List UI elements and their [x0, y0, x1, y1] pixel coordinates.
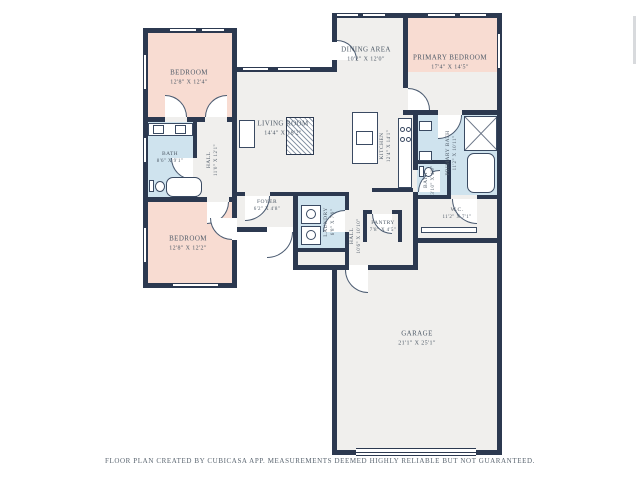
room-label-hall-1: HALL 11'0" X 12'1"	[205, 144, 221, 176]
wall	[477, 195, 502, 199]
room-dims: 11'0" X 12'1"	[213, 144, 221, 176]
window	[143, 138, 148, 162]
closet-shelf	[421, 227, 477, 233]
stove-burner-icon	[406, 127, 411, 132]
window	[460, 13, 486, 18]
room-label-pantry: PANTRY 7'8" X 4'5"	[370, 219, 396, 235]
wall	[476, 450, 502, 455]
wall	[337, 265, 345, 270]
window	[278, 67, 310, 72]
stove-burner-icon	[406, 137, 411, 142]
window	[337, 13, 358, 18]
room-label-primary-bedroom: PRIMARY BEDROOM 17'4" X 14'5"	[413, 52, 487, 72]
room-label-foyer: FOYER 6'2" X 4'8"	[254, 198, 280, 214]
wall	[229, 197, 237, 202]
front-door-arc	[267, 232, 293, 258]
wall	[143, 197, 207, 202]
room-label-living-room: LIVING ROOM 14'4" X 18'2"	[257, 118, 308, 138]
wall	[227, 117, 237, 122]
room-label-laundry: LAUNDRY 6'8" X 7'9"	[322, 207, 338, 236]
room-dims: 10'6" X 10'10"	[356, 218, 364, 253]
room-name: W.C.	[451, 206, 464, 214]
stove-burner-icon	[400, 127, 405, 132]
wall	[345, 192, 349, 210]
room-label-primary-bath: PRIMARY BATH 11'2" X 10'11"	[444, 130, 460, 175]
room-dims: 11'2" X 7'1"	[442, 214, 471, 222]
wall	[372, 188, 413, 192]
room-name: BEDROOM	[170, 67, 208, 78]
footer-disclaimer: FLOOR PLAN CREATED BY CUBICASA APP. MEAS…	[0, 457, 640, 465]
room-name: DINING AREA	[341, 44, 391, 55]
room-dims: 21'1" X 25'1"	[398, 339, 436, 348]
room-label-dining-area: DINING AREA 10'2" X 12'0"	[341, 44, 391, 64]
garage-floor	[337, 270, 497, 450]
room-dims: 6'8" X 7'9"	[330, 209, 338, 235]
wall	[413, 238, 502, 243]
room-dims: 3'10" X 4'9"	[430, 165, 438, 194]
window	[243, 67, 268, 72]
wall	[237, 227, 267, 232]
room-dims: 7'8" X 4'5"	[370, 227, 396, 235]
window	[143, 228, 148, 262]
wall	[497, 13, 502, 455]
wall	[143, 117, 165, 122]
sink-icon	[419, 121, 432, 131]
wall	[232, 240, 237, 283]
builtin-cabinet	[239, 120, 255, 148]
room-dims: 8'6" X 9'1"	[157, 158, 183, 166]
wall	[398, 210, 402, 242]
window	[143, 55, 148, 89]
wall	[293, 265, 337, 270]
room-name: PANTRY	[371, 219, 395, 227]
room-label-wc: W.C. 11'2" X 7'1"	[442, 206, 471, 222]
toilet-icon	[149, 180, 154, 192]
room-name: BATH	[422, 172, 430, 188]
room-name: FOYER	[257, 198, 277, 206]
room-label-kitchen: KITCHEN 12'4" X 14'1"	[378, 130, 394, 162]
room-dims: 12'8" X 12'2"	[169, 244, 207, 253]
kitchen-sink-icon	[356, 131, 373, 145]
wall	[237, 192, 245, 196]
window	[363, 13, 385, 18]
room-label-bedroom-2: BEDROOM 12'8" X 12'2"	[169, 233, 207, 253]
garage-door	[356, 448, 476, 456]
room-dims: 14'4" X 18'2"	[264, 129, 302, 138]
room-label-bedroom-1: BEDROOM 12'8" X 12'4"	[170, 67, 208, 87]
room-dims: 6'2" X 4'8"	[254, 206, 280, 214]
room-dims: 12'8" X 12'4"	[170, 78, 208, 87]
room-name: HALL	[205, 152, 213, 168]
room-name: BATH	[162, 150, 178, 158]
wall	[462, 110, 502, 115]
room-name: GARAGE	[401, 328, 433, 339]
room-label-hall-2: HALL 10'6" X 10'10"	[348, 218, 364, 253]
sink-icon	[175, 125, 186, 134]
wall	[332, 265, 337, 455]
room-dims: 10'2" X 12'0"	[347, 55, 385, 64]
room-name: BEDROOM	[169, 233, 207, 244]
room-name: KITCHEN	[378, 133, 386, 160]
sink-icon	[153, 125, 164, 134]
window	[428, 13, 455, 18]
wall	[413, 192, 418, 242]
bathtub-icon	[467, 153, 495, 193]
garage-floor-strip	[418, 242, 497, 270]
wall	[270, 192, 345, 196]
wall	[332, 60, 337, 72]
room-dims: 17'4" X 14'5"	[431, 63, 469, 72]
room-name: HALL	[348, 228, 356, 244]
sink-icon	[419, 151, 432, 161]
washer-drum-icon	[306, 209, 316, 219]
floor-plan: BEDROOM 12'8" X 12'4" BATH 8'6" X 9'1" H…	[0, 0, 640, 480]
wall	[293, 192, 298, 227]
wall	[413, 242, 418, 270]
edge-watermark	[633, 16, 636, 64]
room-dims: 11'2" X 10'11"	[452, 136, 460, 171]
wall	[298, 248, 345, 252]
room-name: PRIMARY BATH	[444, 130, 452, 175]
wall	[403, 18, 408, 88]
window	[170, 28, 196, 33]
window	[497, 34, 502, 68]
dryer-drum-icon	[306, 230, 316, 240]
closet-icon	[464, 116, 497, 151]
wall	[193, 122, 197, 158]
room-label-bath-2: BATH 3'10" X 4'9"	[422, 165, 438, 194]
bathtub-icon	[166, 177, 202, 197]
stove-burner-icon	[400, 137, 405, 142]
room-label-bath: BATH 8'6" X 9'1"	[157, 150, 183, 166]
window	[173, 283, 218, 288]
room-label-garage: GARAGE 21'1" X 25'1"	[398, 328, 436, 348]
window	[202, 28, 224, 33]
wall	[403, 110, 438, 115]
toilet-icon	[155, 181, 165, 192]
room-name: LAUNDRY	[322, 207, 330, 236]
room-name: LIVING ROOM	[257, 118, 308, 129]
wall	[232, 28, 237, 72]
room-name: PRIMARY BEDROOM	[413, 52, 487, 63]
wall	[368, 265, 418, 270]
room-dims: 12'4" X 14'1"	[386, 130, 394, 162]
